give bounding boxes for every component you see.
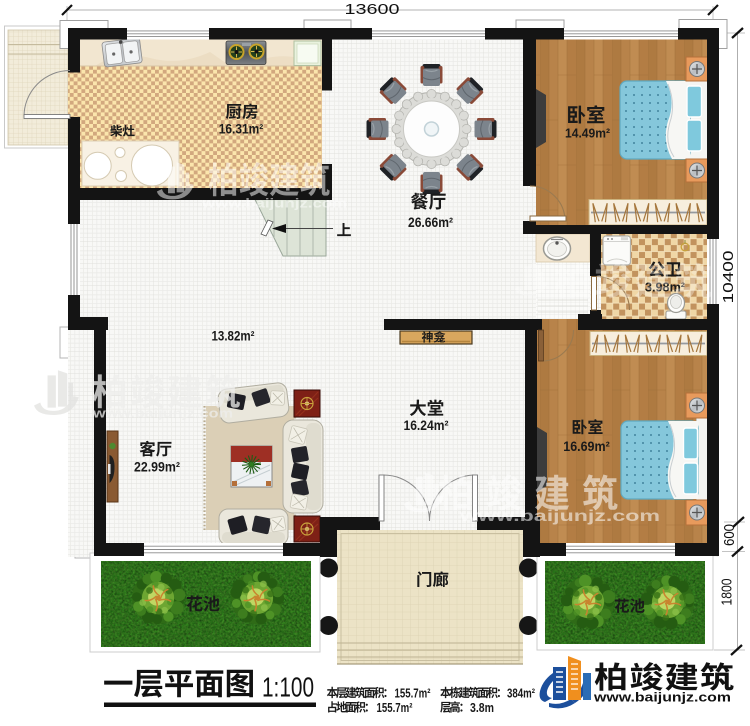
svg-text:384m²: 384m² xyxy=(507,687,535,701)
svg-text:16.24m²: 16.24m² xyxy=(404,418,449,433)
svg-text:1800: 1800 xyxy=(720,579,736,606)
svg-text:16.69m²: 16.69m² xyxy=(563,438,610,454)
svg-text:155.7m²: 155.7m² xyxy=(395,687,431,701)
svg-text:www.baijunjz.com: www.baijunjz.com xyxy=(593,691,731,705)
svg-text:10400: 10400 xyxy=(721,251,737,304)
svg-text:www.baijunjz.com: www.baijunjz.com xyxy=(92,406,233,421)
svg-text:26.66m²: 26.66m² xyxy=(408,214,453,230)
svg-text:3.8m: 3.8m xyxy=(470,701,494,715)
svg-text:22.99m²: 22.99m² xyxy=(134,459,180,475)
svg-text:13600: 13600 xyxy=(345,2,400,18)
svg-text:16.31m²: 16.31m² xyxy=(219,121,264,137)
svg-text:www.baijunjz.com: www.baijunjz.com xyxy=(201,196,347,211)
svg-text:1:100: 1:100 xyxy=(262,672,314,703)
svg-text:www.baijunjz.com: www.baijunjz.com xyxy=(459,508,660,525)
svg-text:600: 600 xyxy=(722,524,738,546)
svg-text:155.7m²: 155.7m² xyxy=(377,701,413,715)
svg-text:13.82m²: 13.82m² xyxy=(212,329,255,344)
svg-text:14.49m²: 14.49m² xyxy=(565,126,611,141)
